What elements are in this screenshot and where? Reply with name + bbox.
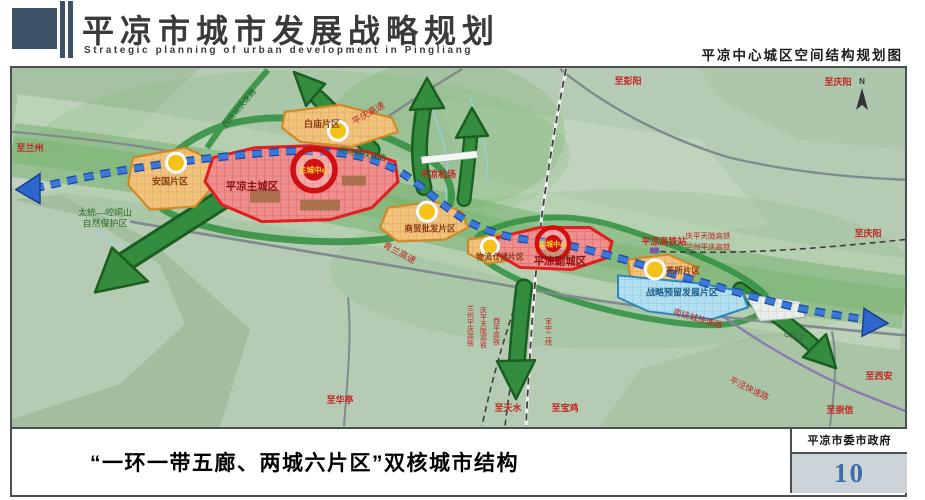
hsr-station-label: 平凉高铁站 bbox=[642, 236, 687, 247]
direction-label: 至宝鸡 bbox=[552, 402, 579, 413]
header-decor-bar bbox=[68, 1, 73, 58]
direction-label: 至崇信 bbox=[827, 404, 854, 415]
direction-label: 至西安 bbox=[866, 370, 893, 381]
page-footer: “一环一带五廊、两城六片区”双核城市结构 平凉市委市政府 10 bbox=[10, 429, 907, 497]
railway-label: 庆平天陇高铁 bbox=[686, 231, 731, 241]
page-subtitle-en: Strategic planning of urban development … bbox=[84, 45, 473, 56]
zone-label: 物流仓储片区 bbox=[476, 251, 524, 261]
planning-map: 白庙片区 安国片区 平凉主城区 商贸批发片区 物流仓储片区 平凉副城区 花所片区… bbox=[10, 66, 907, 429]
zone-label: 安国片区 bbox=[152, 176, 188, 187]
nature-reserve-label: 自然保护区 bbox=[83, 218, 128, 229]
page-header: 平凉市城市发展战略规划 Strategic planning of urban … bbox=[0, 0, 925, 66]
railway-label: 兰州平庆高铁 bbox=[686, 242, 731, 252]
planning-map-svg: 白庙片区 安国片区 平凉主城区 商贸批发片区 物流仓储片区 平凉副城区 花所片区… bbox=[12, 68, 905, 427]
direction-label: 至华亭 bbox=[327, 394, 354, 405]
org-name: 平凉市委市政府 bbox=[792, 429, 907, 454]
city-center-label: 主城中心 bbox=[299, 165, 329, 175]
zone-label: 白庙片区 bbox=[304, 118, 340, 129]
city-center-label: 副城中心 bbox=[539, 240, 567, 249]
direction-label: 至彭阳 bbox=[615, 75, 642, 86]
org-page-box: 平凉市委市政府 10 bbox=[790, 429, 907, 493]
nature-reserve-label: 太统—崆峒山 bbox=[78, 207, 132, 218]
zone-label: 战略预留发展片区 bbox=[646, 286, 718, 297]
airport-label: 平凉机场 bbox=[420, 169, 456, 180]
svg-text:N: N bbox=[859, 77, 865, 86]
header-decor-square bbox=[12, 8, 57, 49]
direction-label: 至庆阳 bbox=[855, 228, 882, 239]
railway-label: 庆平天陇高铁 bbox=[479, 305, 487, 349]
header-decor-bar bbox=[60, 1, 65, 58]
hsr-station-marker bbox=[650, 248, 659, 254]
zone-label: 花所片区 bbox=[666, 265, 700, 275]
railway-label: 宝中二线 bbox=[544, 316, 552, 345]
page-number: 10 bbox=[792, 454, 907, 493]
zone-label: 平凉主城区 bbox=[226, 180, 279, 193]
zone-label: 商贸批发片区 bbox=[405, 224, 456, 234]
structure-caption: “一环一带五廊、两城六片区”双核城市结构 bbox=[90, 447, 519, 477]
railway-label: 兰州平庆高铁 bbox=[466, 303, 474, 347]
railway-label: 西平高铁 bbox=[492, 317, 500, 346]
zone-label: 平凉副城区 bbox=[534, 254, 587, 267]
direction-label: 至庆阳 bbox=[825, 76, 852, 87]
direction-label: 至兰州 bbox=[17, 142, 44, 153]
direction-label: 至天水 bbox=[495, 402, 523, 413]
map-sheet-title: 平凉中心城区空间结构规划图 bbox=[702, 44, 904, 64]
